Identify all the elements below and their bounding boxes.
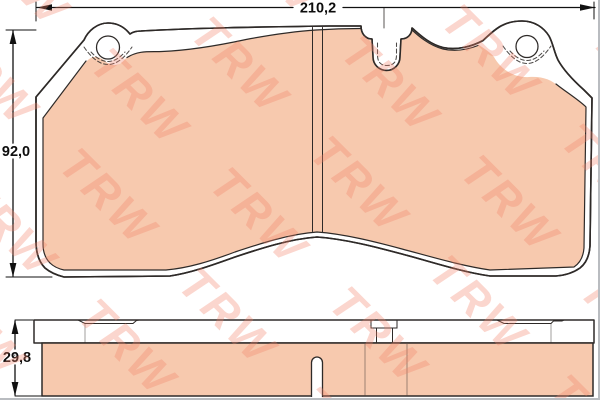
dim-arrow-down-icon — [12, 382, 19, 396]
dim-thickness-label: 29,8 — [3, 350, 31, 366]
dimension-width: 210,2 — [36, 1, 595, 22]
mounting-hole-right — [516, 36, 538, 58]
dim-arrow-up-icon — [10, 30, 17, 44]
dim-height-label: 92,0 — [2, 144, 30, 160]
brake-pad-technical-drawing: 210,2 92,0 29,8 TRW TRW TRW TRW TRW TRW … — [0, 0, 600, 400]
dim-width-label: 210,2 — [300, 1, 336, 17]
dim-arrow-right-icon — [580, 4, 595, 11]
dim-arrow-left-icon — [37, 4, 52, 11]
mounting-hole-left — [97, 36, 120, 59]
dim-arrow-down-icon — [10, 263, 17, 277]
side-groove-slot — [312, 357, 323, 397]
center-notch-inner-dashed — [378, 43, 397, 66]
pad-side-view — [34, 320, 594, 397]
dim-arrow-up-icon — [12, 320, 19, 334]
pad-front-view — [36, 8, 592, 277]
drawing-canvas: 210,2 92,0 29,8 — [0, 0, 600, 400]
